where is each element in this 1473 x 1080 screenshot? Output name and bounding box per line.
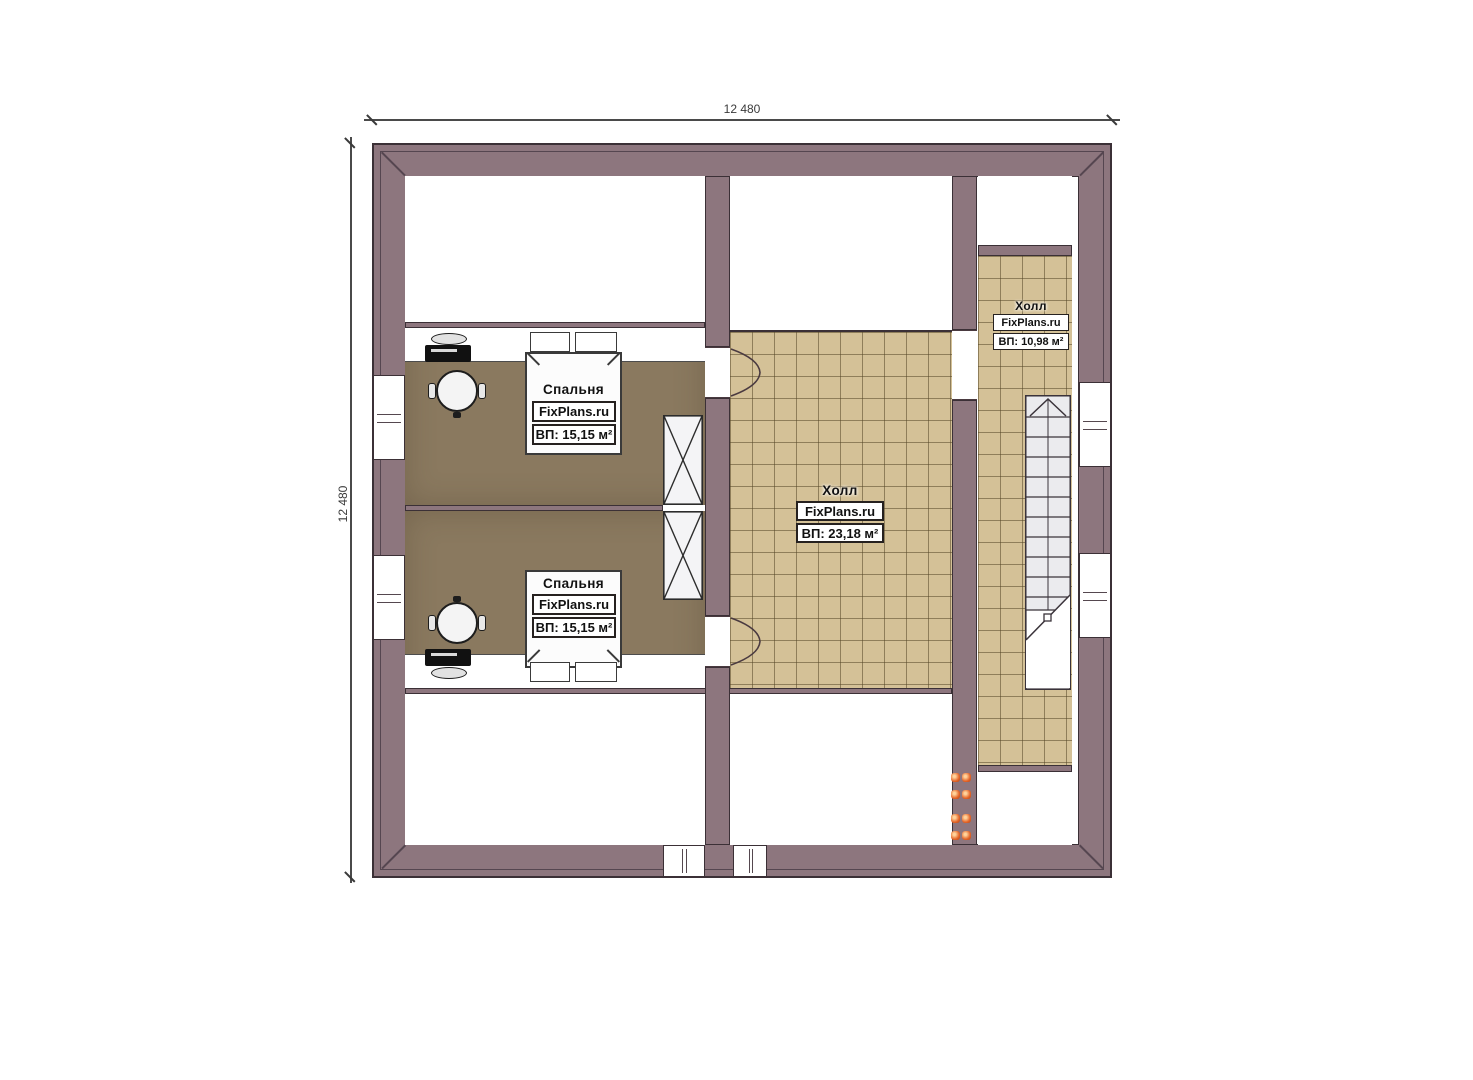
bedroom1-name: Спальня <box>525 382 622 397</box>
room-upper-middle <box>730 176 952 330</box>
wall-between-bedrooms <box>405 505 663 511</box>
wall-upper-right-room <box>978 245 1072 256</box>
chair2-icon <box>436 602 478 644</box>
bed1-pillow-left <box>530 332 570 352</box>
wall-central-middle <box>705 398 730 616</box>
bed1-pillow-right <box>575 332 617 352</box>
dimension-label-left: 12 480 <box>336 464 350 544</box>
dimension-line-top <box>364 119 1120 121</box>
bedroom1-door-swing-icon <box>729 347 765 398</box>
floor-plan: Спальня FixPlans.ru ВП: 15,15 м² Спальня… <box>372 143 1112 878</box>
room-lower-left <box>405 694 705 845</box>
bedroom2-door-swing-icon <box>729 616 765 667</box>
window-left-lower <box>373 555 405 640</box>
bedroom1-area-box: ВП: 15,15 м² <box>532 424 616 445</box>
bedroom2-name: Спальня <box>525 576 622 591</box>
chair1-arm-right <box>478 383 486 399</box>
window-bottom-left <box>663 845 705 877</box>
hall-name: Холл <box>796 483 884 498</box>
desk2-chair-icon <box>431 667 467 679</box>
wardrobe-icon-upper <box>663 415 703 505</box>
room-upper-left <box>405 176 705 322</box>
bedroom1-door-opening <box>705 347 730 398</box>
bedroom2-brand-box: FixPlans.ru <box>532 594 616 615</box>
window-right-lower <box>1079 553 1111 638</box>
hall-brand-box: FixPlans.ru <box>796 501 884 521</box>
desk1-icon <box>425 345 471 362</box>
desk2-icon <box>425 649 471 666</box>
bedroom1-brand-box: FixPlans.ru <box>532 401 616 422</box>
room-lower-right <box>978 772 1072 845</box>
wardrobe-icon-lower <box>663 511 703 600</box>
bedroom2-door-opening <box>705 616 730 667</box>
desk1-chair-icon <box>431 333 467 345</box>
wall-bottom-long <box>405 688 952 694</box>
chair2-arm-right <box>478 615 486 631</box>
room-upper-right <box>978 176 1072 245</box>
window-bottom-right <box>733 845 767 877</box>
wall-central-lower <box>705 667 730 845</box>
window-right-upper <box>1079 382 1111 467</box>
wall-right-upper <box>952 176 977 330</box>
chair1-stem <box>453 412 461 418</box>
chair1-arm-left <box>428 383 436 399</box>
heater-dots-icon <box>951 773 973 843</box>
chair1-icon <box>436 370 478 412</box>
chair2-arm-left <box>428 615 436 631</box>
hall-corridor-opening <box>952 330 977 400</box>
wall-corridor-bottom <box>978 765 1072 772</box>
bed2-pillow-left <box>530 662 570 682</box>
hall-upper-brand-box: FixPlans.ru <box>993 314 1069 331</box>
wall-bedroom1-top <box>405 322 705 328</box>
hall-area-box: ВП: 23,18 м² <box>796 523 884 543</box>
staircase-icon <box>1025 395 1071 690</box>
hall-upper-area-box: ВП: 10,98 м² <box>993 333 1069 350</box>
dimension-line-left <box>350 137 352 883</box>
hall-upper-name: Холл <box>993 299 1069 313</box>
wall-central-upper <box>705 176 730 347</box>
dimension-label-top: 12 480 <box>672 102 812 116</box>
room-lower-middle <box>730 694 952 845</box>
bedroom2-area-box: ВП: 15,15 м² <box>532 617 616 638</box>
window-left-upper <box>373 375 405 460</box>
bed2-pillow-right <box>575 662 617 682</box>
